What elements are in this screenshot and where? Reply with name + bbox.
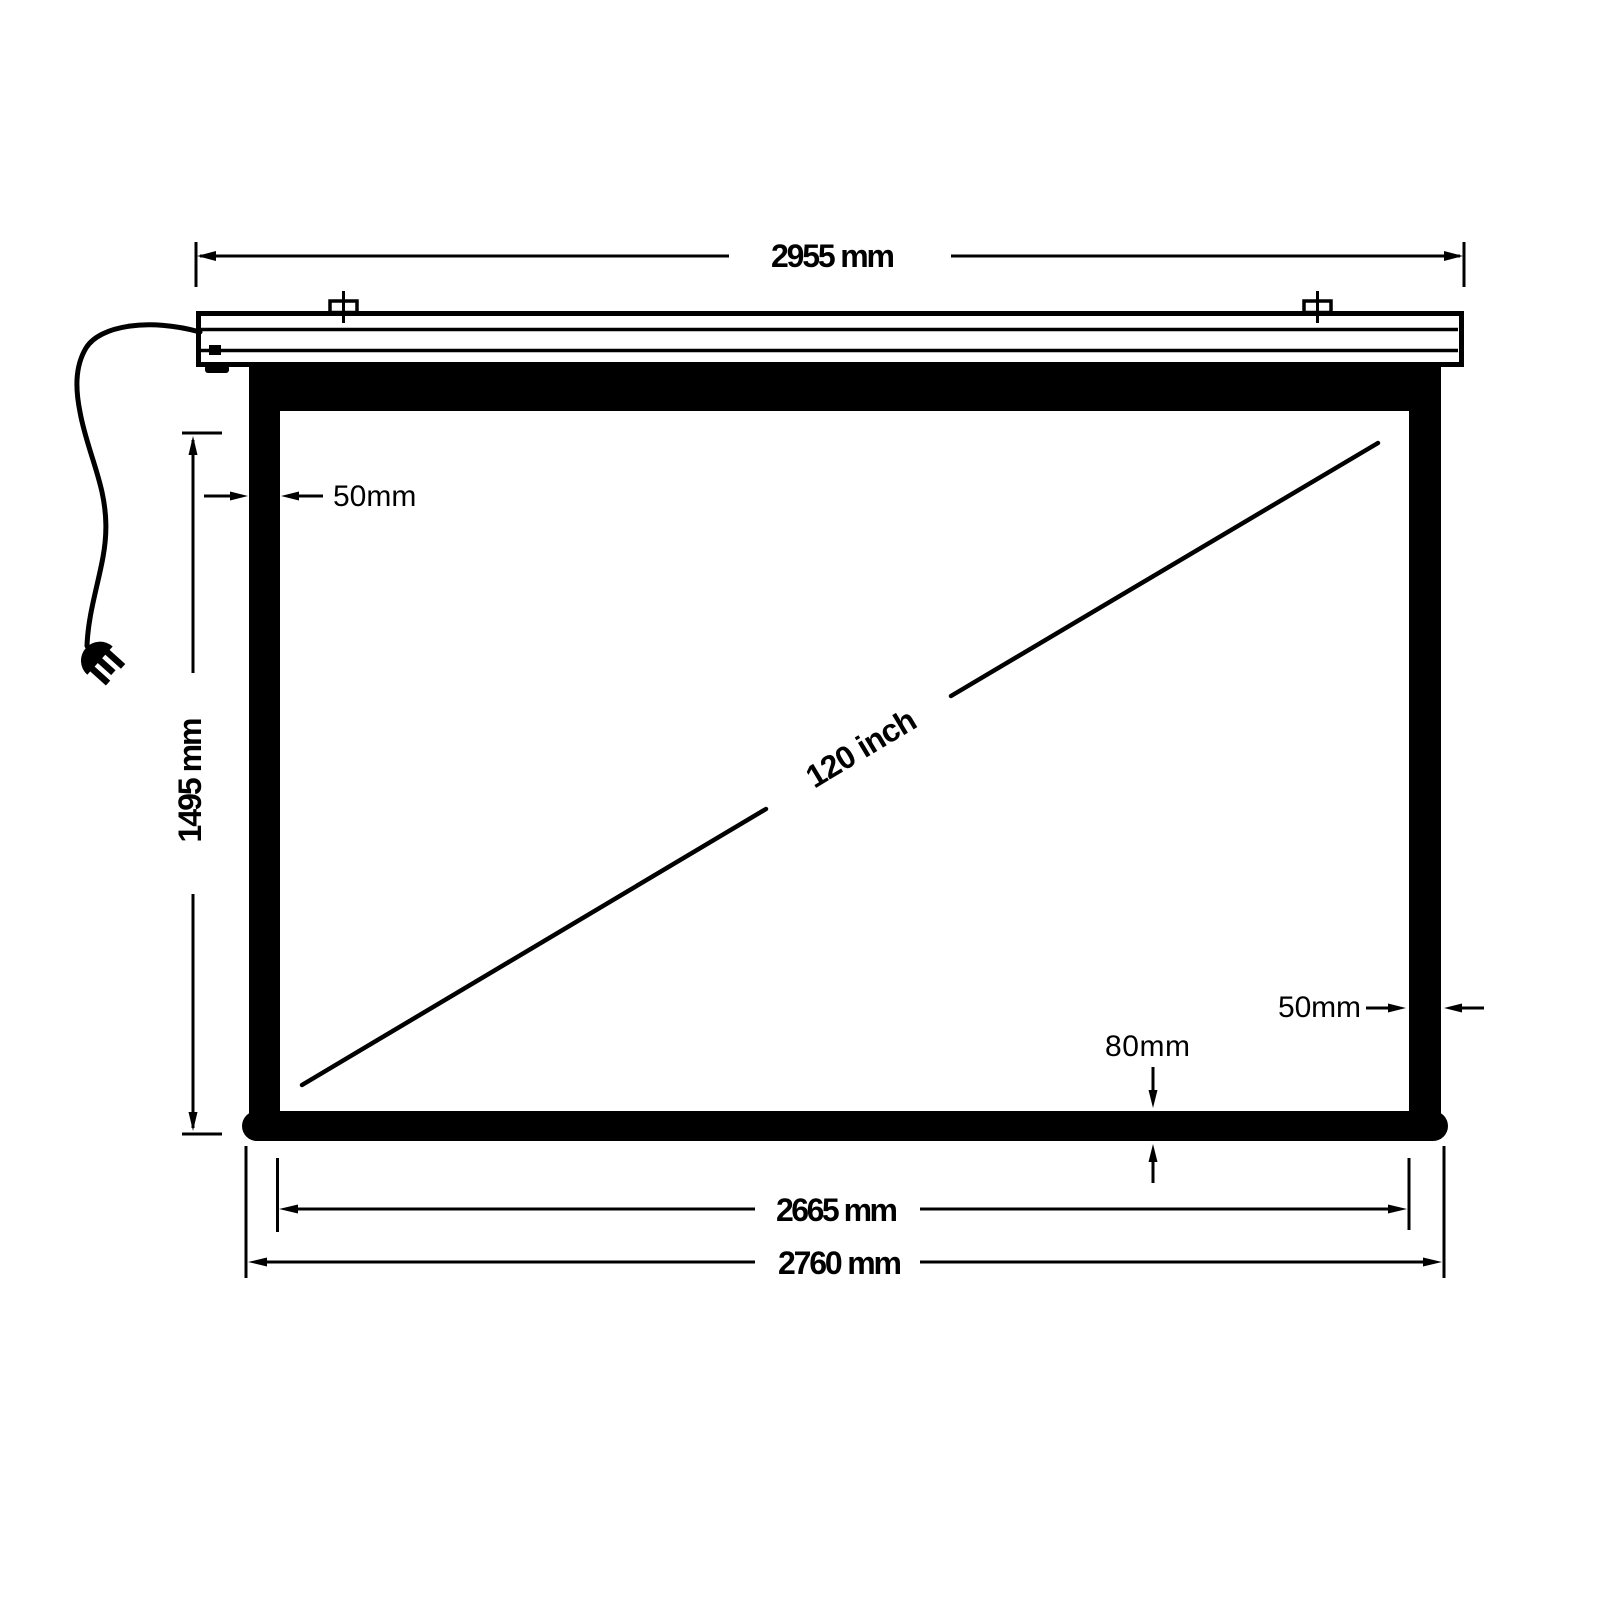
svg-text:50mm: 50mm — [333, 480, 416, 513]
svg-text:50mm: 50mm — [1278, 991, 1361, 1024]
svg-text:80mm: 80mm — [1105, 1030, 1190, 1063]
svg-text:1495 mm: 1495 mm — [172, 718, 208, 843]
svg-text:2955 mm: 2955 mm — [771, 238, 895, 274]
svg-text:2760 mm: 2760 mm — [778, 1245, 902, 1281]
svg-text:2665 mm: 2665 mm — [776, 1192, 898, 1228]
